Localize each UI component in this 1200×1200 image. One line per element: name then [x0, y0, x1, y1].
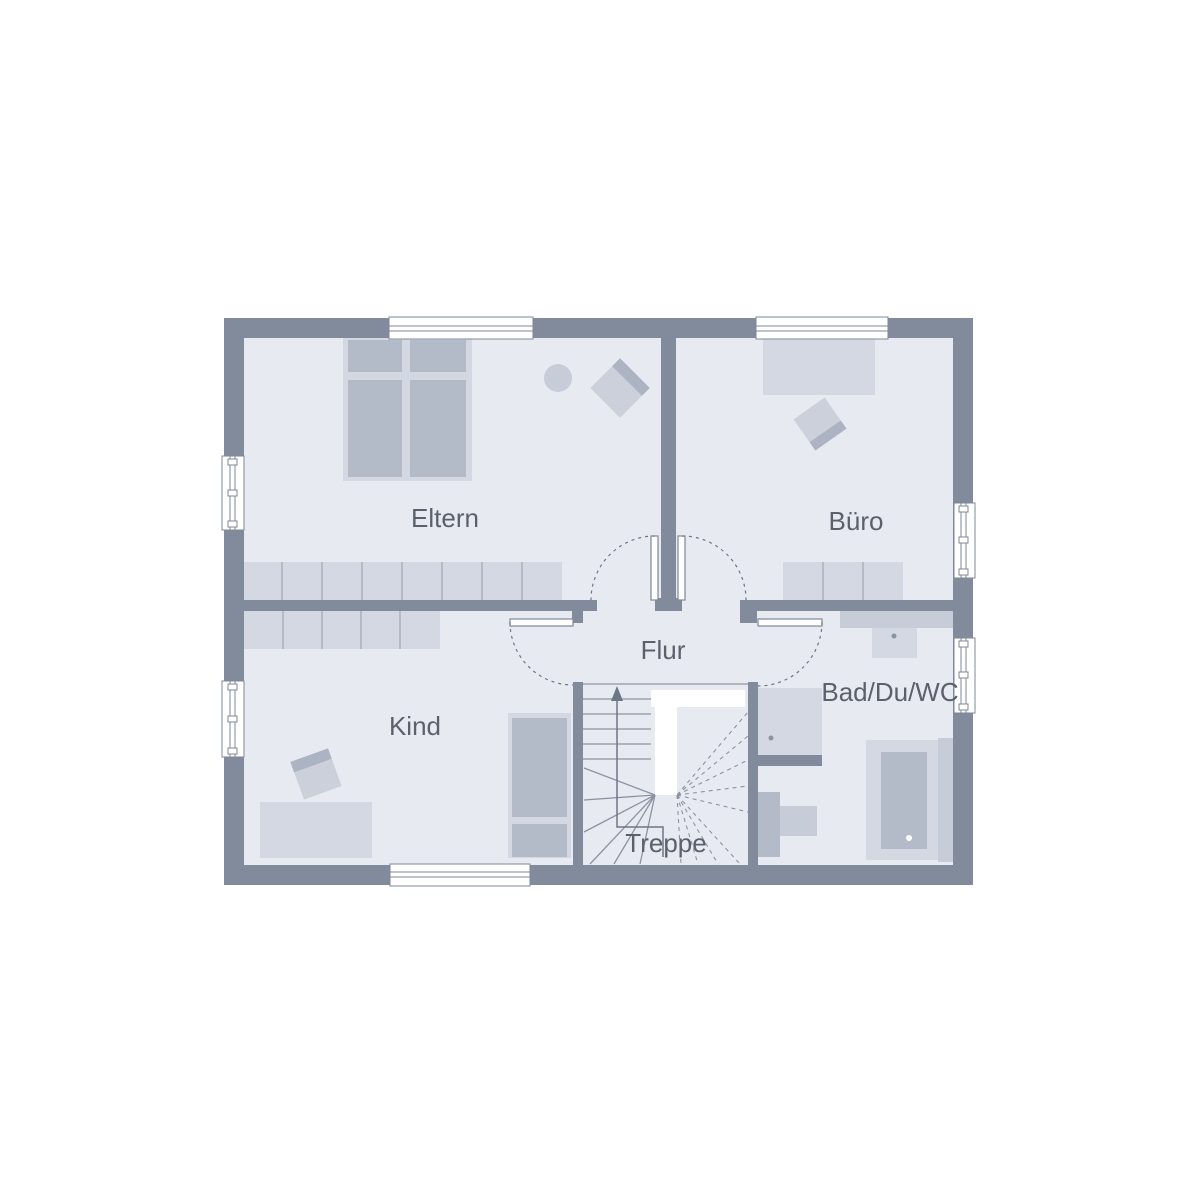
label-bad: Bad/Du/WC	[821, 677, 958, 707]
round-side-table	[544, 364, 572, 392]
washbasin	[872, 628, 917, 658]
floor-plan-drawing: Eltern Büro Kind Flur Bad/Du/WC Treppe	[0, 0, 1200, 1200]
window-right-buero	[954, 503, 975, 578]
bed-mattress-right	[410, 380, 466, 477]
shower-drain	[769, 736, 774, 741]
kind-bed-mattress	[512, 718, 567, 817]
door-eltern-leaf	[651, 536, 658, 600]
label-kind: Kind	[389, 711, 441, 741]
shower-wc-partition	[758, 755, 822, 766]
kind-bed-pillow	[512, 824, 567, 857]
label-buero: Büro	[829, 506, 884, 536]
window-top-buero	[756, 317, 888, 339]
sideboard	[783, 562, 903, 601]
stair-wall-left	[573, 682, 583, 865]
bed-pillow-left	[348, 340, 402, 372]
wall-bottom	[224, 865, 973, 885]
window-bottom-kind	[390, 864, 530, 886]
floor-plan-page: Eltern Büro Kind Flur Bad/Du/WC Treppe	[0, 0, 1200, 1200]
window-left-kind	[222, 681, 244, 757]
wall-left	[224, 318, 244, 885]
shower	[758, 688, 822, 755]
bathtub-basin	[881, 752, 927, 849]
bed-pillow-right	[410, 340, 466, 372]
kind-desk	[260, 802, 372, 858]
window-top-eltern	[389, 317, 533, 339]
label-flur: Flur	[641, 635, 686, 665]
wc-bowl	[780, 806, 817, 836]
door-buero-leaf	[678, 536, 685, 600]
kind-wardrobe	[244, 611, 440, 649]
wall-buero-bad	[740, 600, 953, 611]
door-bad-leaf	[758, 619, 822, 626]
bathtub-ledge	[938, 738, 953, 862]
wc-cistern	[758, 792, 780, 857]
door-kind-leaf	[510, 619, 573, 626]
window-left-eltern	[222, 456, 244, 530]
vanity-counter	[840, 610, 953, 628]
wall-eltern-buero	[661, 338, 676, 600]
wall-right	[953, 318, 973, 885]
bad-door-jamb	[740, 611, 757, 623]
bathtub-drain	[906, 835, 912, 841]
label-treppe: Treppe	[625, 828, 706, 858]
label-eltern: Eltern	[411, 503, 479, 533]
desk	[763, 338, 875, 395]
wall-eltern-kind	[244, 600, 597, 611]
washbasin-tap	[892, 634, 897, 639]
stair-wall-right	[748, 682, 758, 865]
kind-door-jamb	[572, 611, 583, 623]
bed-mattress-left	[348, 380, 402, 477]
